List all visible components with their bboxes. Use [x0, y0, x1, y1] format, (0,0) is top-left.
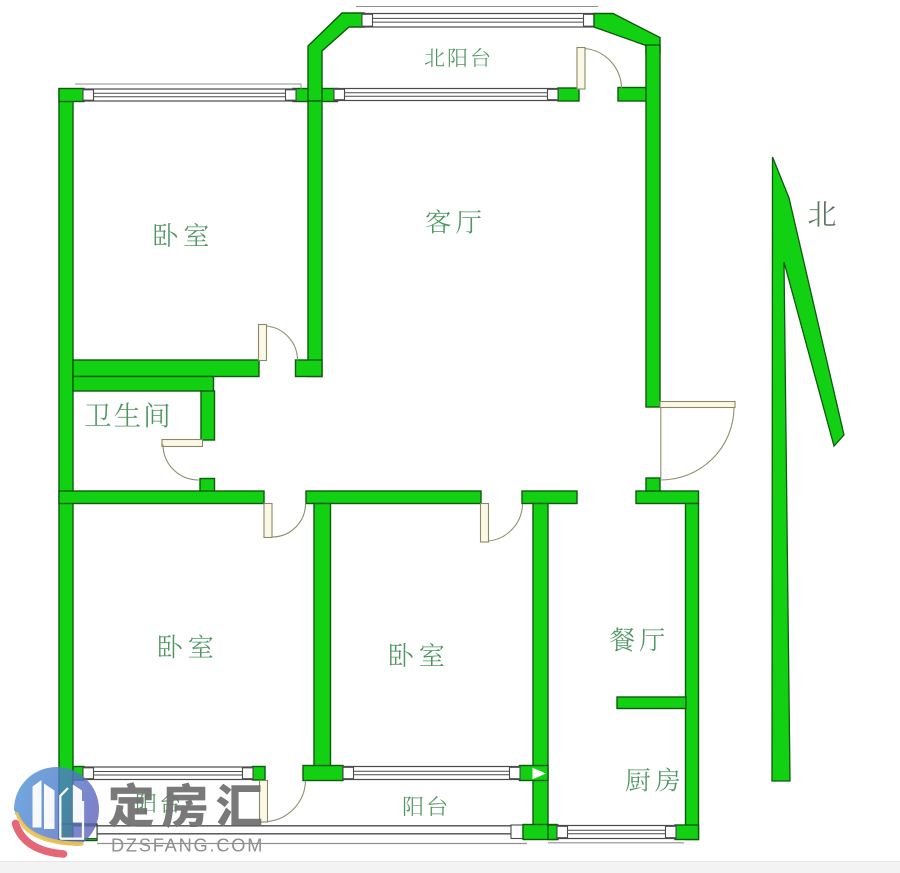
svg-text:DZSFANG.COM: DZSFANG.COM [111, 836, 264, 856]
